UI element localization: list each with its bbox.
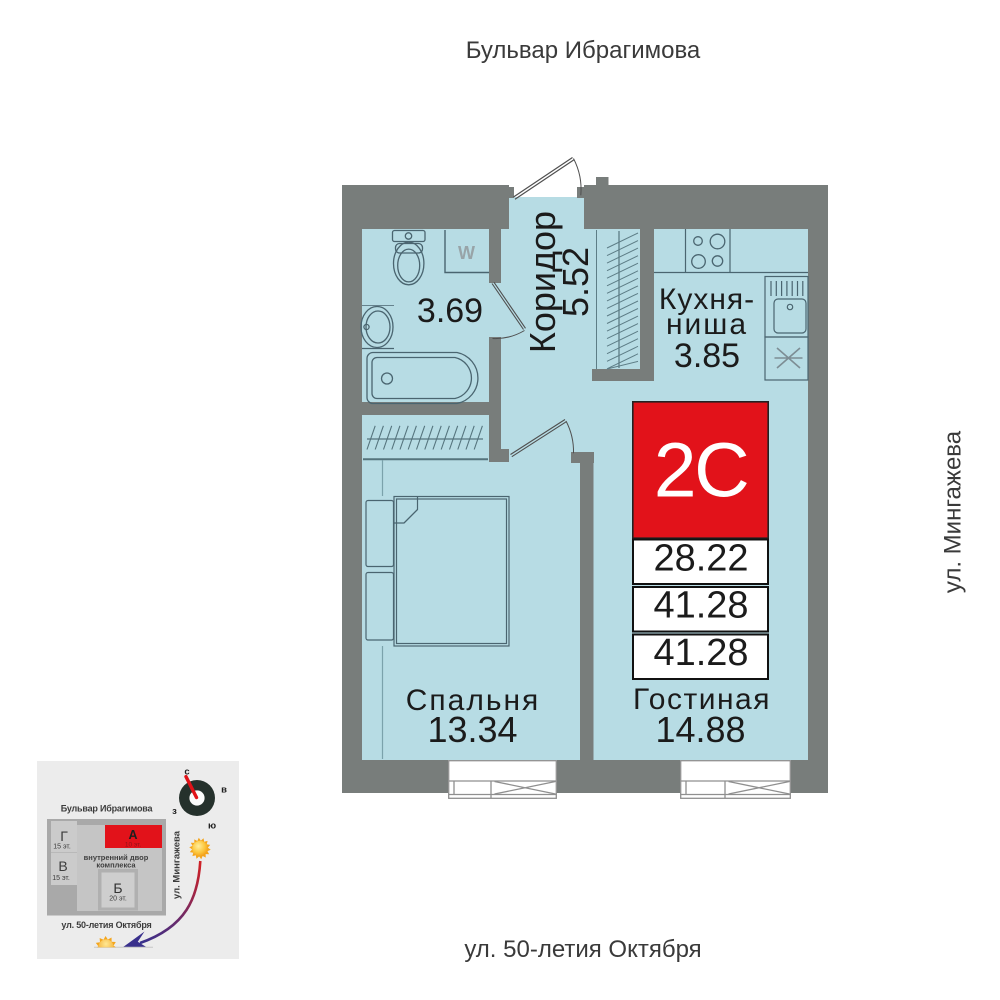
svg-text:41.28: 41.28 [653,632,748,674]
svg-text:ул. 50-летия Октября: ул. 50-летия Октября [61,920,151,930]
svg-text:W: W [458,243,475,263]
svg-text:3.85: 3.85 [674,337,740,375]
svg-text:ул. Мингажева: ул. Мингажева [940,430,967,593]
svg-text:В: В [58,858,67,874]
svg-text:А: А [128,828,137,842]
svg-text:13.34: 13.34 [427,709,517,750]
svg-text:5.52: 5.52 [555,247,596,317]
svg-text:Б: Б [113,880,122,896]
svg-text:в: в [221,785,227,796]
svg-text:3.69: 3.69 [417,292,483,330]
svg-text:10 эт.: 10 эт. [125,842,141,849]
svg-text:2С: 2С [654,428,747,514]
svg-text:41.28: 41.28 [653,585,748,627]
svg-text:Г: Г [60,828,68,844]
svg-text:Бульвар Ибрагимова: Бульвар Ибрагимова [466,37,701,64]
svg-text:28.22: 28.22 [653,537,748,579]
svg-text:з: з [172,806,177,817]
svg-text:с: с [184,767,189,778]
svg-text:20 эт.: 20 эт. [109,896,127,903]
svg-text:14.88: 14.88 [655,709,745,750]
svg-text:ул. 50-летия Октября: ул. 50-летия Октября [464,936,701,963]
svg-text:Бульвар Ибрагимова: Бульвар Ибрагимова [61,804,154,814]
svg-text:комплекса: комплекса [96,861,136,870]
svg-text:15 эт.: 15 эт. [53,844,71,851]
svg-text:ул. Мингажева: ул. Мингажева [172,830,183,899]
svg-text:15 эт.: 15 эт. [52,875,70,882]
svg-text:ю: ю [208,821,216,832]
